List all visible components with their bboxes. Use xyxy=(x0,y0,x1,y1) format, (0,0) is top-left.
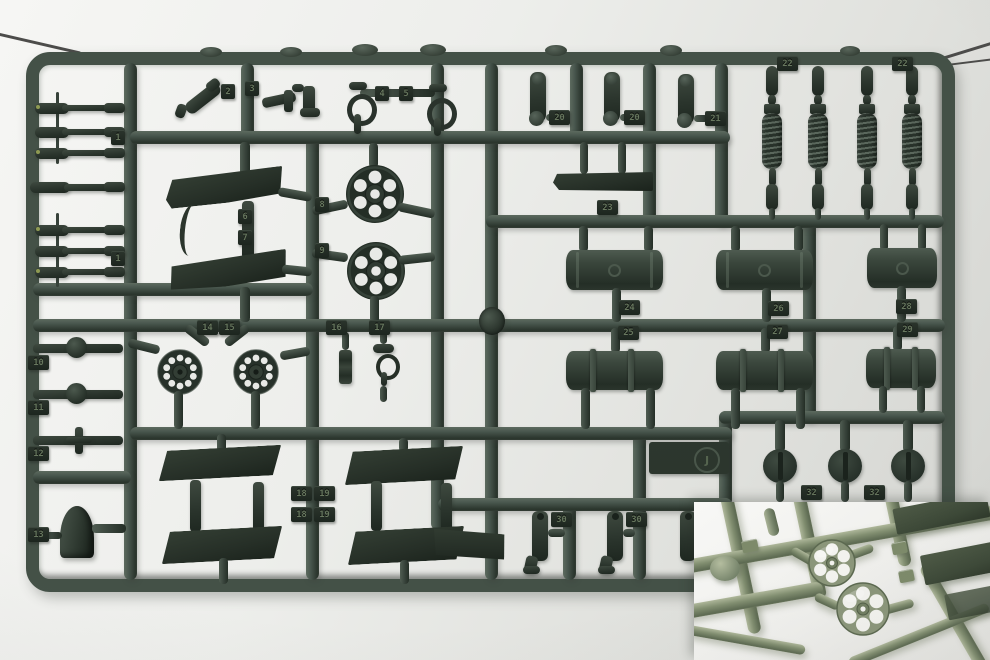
spring-part xyxy=(812,184,824,210)
spring-coil xyxy=(762,113,782,169)
part-number-tag: 1 xyxy=(111,251,125,266)
part-number-tag: 21 xyxy=(705,111,726,126)
sprue-stub xyxy=(769,208,775,220)
spring-coil xyxy=(857,113,877,169)
sprue-gate-nub xyxy=(420,44,446,56)
part-number-tag: 25 xyxy=(618,325,639,340)
launcher-cap xyxy=(685,513,692,520)
sprue-stub xyxy=(251,391,260,429)
sprue-stub xyxy=(731,388,740,429)
beam-part xyxy=(553,172,653,191)
sprue-stub xyxy=(581,388,590,429)
part-number-tag: 7 xyxy=(238,230,252,245)
sprue-stub xyxy=(623,529,635,537)
part-number-tag: 11 xyxy=(28,400,49,415)
paint-speck xyxy=(36,269,40,273)
part-number-tag: 5 xyxy=(399,86,413,101)
bolt-head xyxy=(606,73,618,85)
inset-plate-part xyxy=(944,582,990,621)
ball-joint-part xyxy=(66,337,87,358)
sprue-gate-nub xyxy=(840,46,860,56)
sprue-stub xyxy=(815,208,821,220)
sprue-stub xyxy=(776,481,784,502)
shackle-part xyxy=(434,118,441,136)
sprue-gate-nub xyxy=(545,45,567,56)
part-number-tag: 23 xyxy=(597,200,618,215)
drum-strap-band xyxy=(740,349,746,392)
sprue-stub xyxy=(92,524,126,533)
rod-part xyxy=(104,103,125,113)
sprue-link xyxy=(441,483,452,531)
part-number-tag: 9 xyxy=(315,243,329,258)
part-number-tag: 6 xyxy=(238,209,252,224)
part-number-tag: 29 xyxy=(897,322,918,337)
part-number-tag: 19 xyxy=(314,486,335,501)
sprue-stub xyxy=(879,386,887,413)
part-number-tag: 24 xyxy=(619,300,640,315)
bolt-head xyxy=(677,113,692,128)
sprue-stub xyxy=(240,142,250,175)
bolt-head xyxy=(529,111,544,126)
sprue-stub xyxy=(903,420,913,452)
sprue-stub xyxy=(917,386,925,413)
sprue-stub xyxy=(360,89,435,97)
sprue-runner xyxy=(643,63,656,225)
sprue-link xyxy=(253,482,264,532)
drum-end-ring xyxy=(576,252,579,288)
drum-strap-band xyxy=(628,349,634,392)
inset-drilled-disc-part xyxy=(836,582,890,636)
shackle-part xyxy=(354,114,361,134)
shackle-part xyxy=(427,98,457,130)
sprue-stub xyxy=(174,391,183,429)
shackle-part xyxy=(429,84,447,92)
sprue-stub xyxy=(880,224,888,251)
part-number-tag: 14 xyxy=(197,320,218,335)
banded-drum-part xyxy=(716,351,813,390)
sprue-stub xyxy=(840,420,850,452)
spring-part xyxy=(766,66,778,96)
clevis-part xyxy=(376,354,400,380)
sprue-stub xyxy=(731,226,740,252)
sprue-gate-nub xyxy=(280,47,302,57)
hanging-wire-right-2 xyxy=(948,58,990,66)
fender-plate-part xyxy=(343,446,465,485)
sprue-runner xyxy=(438,498,732,511)
inset-photo xyxy=(694,502,990,660)
sprue-stub xyxy=(618,142,626,174)
ball-joint-part xyxy=(66,383,87,404)
roadwheel-disc-part xyxy=(233,349,279,395)
banded-drum-part xyxy=(866,349,936,388)
part-number-tag: 1 xyxy=(111,130,125,145)
part-number-tag: 3 xyxy=(245,81,259,96)
sprue-center-hub xyxy=(479,307,505,335)
spoked-wheel-part xyxy=(345,164,405,224)
sprue-stub xyxy=(918,224,926,251)
sprue-stub xyxy=(380,386,387,402)
spring-part xyxy=(861,66,873,96)
drum-end-ring xyxy=(726,252,729,288)
spring-coil xyxy=(902,113,922,169)
hatch-disc-handle xyxy=(843,452,848,480)
part-number-tag: 32 xyxy=(864,485,885,500)
sprue-runner xyxy=(33,471,131,484)
part-number-tag: 12 xyxy=(28,446,49,461)
roadwheel-disc-part xyxy=(157,349,203,395)
sprue-runner xyxy=(803,215,816,421)
inset-bullet-part xyxy=(763,507,780,537)
rod-part xyxy=(104,148,125,158)
sprue-stub xyxy=(579,226,588,252)
sprue-stub xyxy=(219,558,228,584)
sprue-link xyxy=(190,480,201,532)
inset-number-tag xyxy=(898,569,915,584)
part-number-tag: 28 xyxy=(896,299,917,314)
sprue-link xyxy=(371,481,382,531)
part-number-tag: 16 xyxy=(326,320,347,335)
part-number-tag: 22 xyxy=(777,56,798,71)
banded-drum-part xyxy=(566,351,663,390)
drum-end-ring xyxy=(650,252,653,288)
spring-part xyxy=(906,184,918,210)
sprue-runner xyxy=(715,63,728,225)
bolt-head xyxy=(603,111,618,126)
paint-speck xyxy=(36,105,40,109)
inset-plate-part xyxy=(920,541,990,586)
part-number-tag: 27 xyxy=(767,324,788,339)
sprue-stub xyxy=(646,388,655,429)
bolt-head xyxy=(680,75,692,87)
part-number-tag: 30 xyxy=(626,512,647,527)
part-number-tag: 8 xyxy=(315,197,329,212)
shackle-part xyxy=(347,94,377,126)
drum-filler-cap xyxy=(608,264,621,277)
spring-part xyxy=(766,184,778,210)
part-number-tag: 26 xyxy=(768,301,789,316)
part-number-tag: 30 xyxy=(551,512,572,527)
rod-part xyxy=(104,267,125,277)
bracket-part xyxy=(300,108,320,117)
part-number-tag: 20 xyxy=(549,110,570,125)
inset-hub xyxy=(710,556,740,581)
part-number-tag: 32 xyxy=(801,485,822,500)
sprue-letter-circle: J xyxy=(694,447,720,473)
drum-strap-band xyxy=(590,349,596,392)
part-number-tag: 18 xyxy=(291,507,312,522)
smoke-launcher-part xyxy=(598,566,615,574)
sprue-letter: J xyxy=(705,454,709,467)
part-number-tag: 4 xyxy=(375,86,389,101)
smoke-launcher-part xyxy=(523,566,540,574)
inset-plate-part xyxy=(892,502,990,535)
drum-strap-band xyxy=(912,347,918,390)
bracket-part xyxy=(284,90,293,112)
sprue-stub xyxy=(864,208,870,220)
sprue-stub xyxy=(841,481,849,502)
sprue-stub xyxy=(904,481,912,502)
part-number-tag: 10 xyxy=(28,355,49,370)
paint-speck xyxy=(36,227,40,231)
link-part xyxy=(339,350,352,384)
part-number-tag: 17 xyxy=(369,320,390,335)
sprue-stub xyxy=(775,420,785,452)
drum-end-ring xyxy=(800,252,803,288)
sprue-stub xyxy=(796,388,805,429)
sprue-stub xyxy=(240,287,250,322)
part-number-tag: 2 xyxy=(221,84,235,99)
spring-coil xyxy=(808,113,828,169)
pin-part xyxy=(66,437,92,443)
drum-strap-band xyxy=(778,349,784,392)
drum-filler-cap xyxy=(896,262,909,275)
rod-part xyxy=(104,182,125,192)
inset-runner xyxy=(694,581,824,621)
part-number-tag: 19 xyxy=(314,507,335,522)
sprue-stub xyxy=(548,529,565,537)
clevis-part xyxy=(381,372,387,386)
rod-part xyxy=(104,225,125,235)
photo-of-model-kit-sprue: J 1 2 3 4 5 20 20 21 22 22 6 7 8 9 1 23 … xyxy=(0,0,990,660)
drum-strap-band xyxy=(884,347,890,390)
sprue-stub xyxy=(400,560,409,584)
sprue-stub xyxy=(909,208,915,220)
sprue-stub xyxy=(644,226,653,252)
sprue-stub xyxy=(580,142,588,174)
part-number-tag: 20 xyxy=(624,110,645,125)
part-number-tag: 22 xyxy=(892,56,913,71)
sprue-gate-nub xyxy=(352,44,378,56)
part-number-tag: 18 xyxy=(291,486,312,501)
sprue-runner xyxy=(486,215,944,228)
spring-part xyxy=(812,66,824,96)
shackle-part xyxy=(349,82,367,90)
spring-part xyxy=(861,184,873,210)
clevis-part xyxy=(373,344,394,353)
sprue-stub xyxy=(370,296,379,323)
sprue-gate-nub xyxy=(660,45,682,56)
hatch-disc-handle xyxy=(906,452,911,480)
part-number-tag: 13 xyxy=(28,527,49,542)
sprue-stub xyxy=(794,226,803,252)
bolt-head xyxy=(532,73,544,85)
launcher-cap xyxy=(537,513,544,520)
drum-filler-cap xyxy=(758,264,771,277)
sprue-runner xyxy=(130,131,730,144)
part-number-tag: 15 xyxy=(219,320,240,335)
launcher-cap xyxy=(612,513,619,520)
sprue-gate-nub xyxy=(200,47,222,57)
paint-speck xyxy=(36,150,40,154)
hatch-disc-handle xyxy=(778,452,783,480)
inset-drilled-disc-part xyxy=(808,539,856,587)
spoked-wheel-part xyxy=(346,241,406,301)
